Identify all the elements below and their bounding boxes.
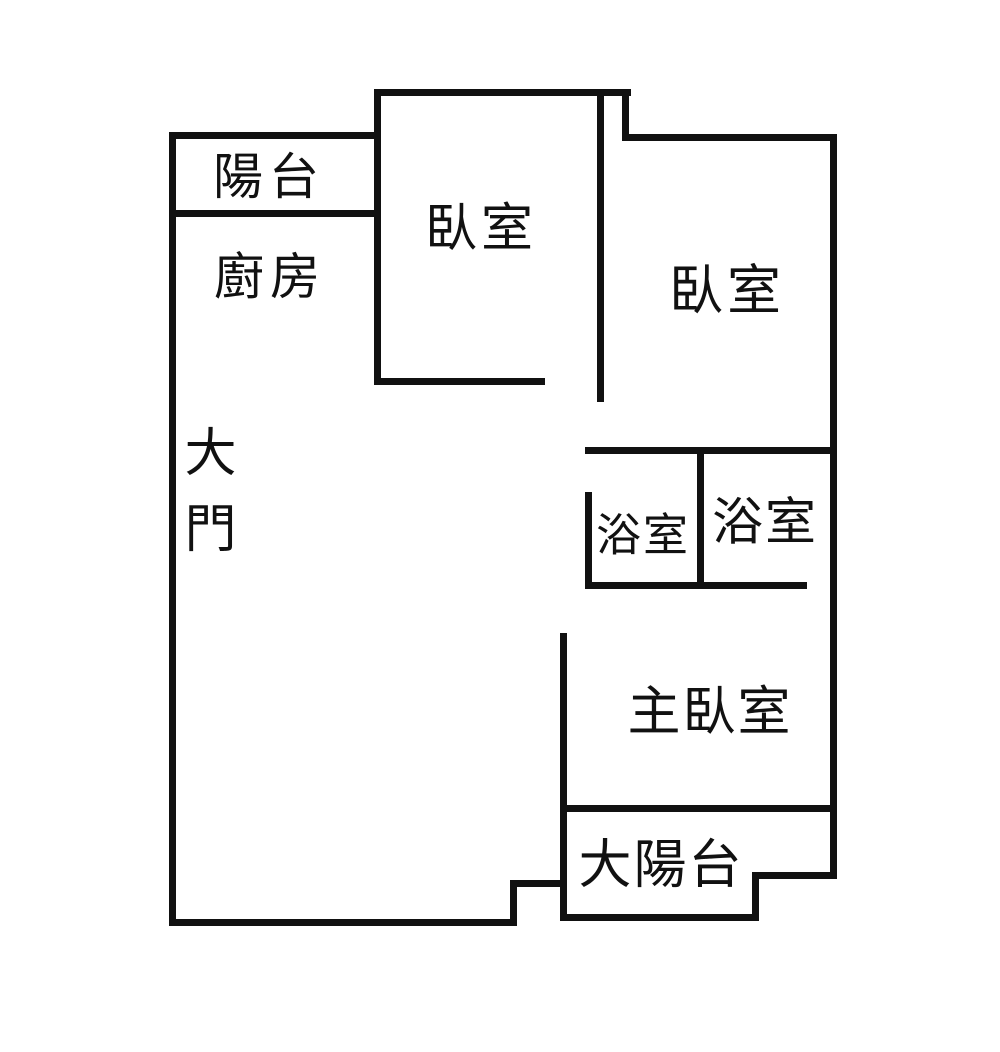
wall-outer-left — [169, 132, 176, 926]
wall-bath-top — [585, 447, 837, 454]
wall-terrace-step-top — [752, 872, 837, 879]
wall-bedroom-right-top — [622, 134, 837, 141]
wall-bedroom-top-right — [597, 89, 604, 402]
wall-bath-bottom — [585, 582, 807, 589]
wall-bath-divider — [697, 447, 704, 589]
room-label-big-balcony: 大陽台 — [579, 840, 744, 893]
wall-terrace-step-right — [752, 872, 759, 921]
wall-bath-left-left — [585, 492, 592, 589]
wall-entry-step-top — [510, 880, 567, 887]
wall-balcony-top — [170, 132, 380, 139]
wall-master-left — [560, 633, 567, 921]
room-label-bedroom-top: 臥室 — [425, 204, 537, 256]
wall-top-step — [622, 89, 629, 141]
room-label-kitchen: 廚房 — [214, 252, 326, 302]
wall-outer-bottom — [169, 919, 517, 926]
room-label-master-bedroom: 主臥室 — [628, 687, 793, 740]
room-label-bedroom-right: 臥室 — [669, 264, 785, 318]
room-label-bath-right: 浴室 — [712, 499, 818, 550]
wall-master-bottom — [560, 805, 837, 812]
wall-terrace-bottom — [560, 914, 759, 921]
wall-bedroom-top-top — [374, 89, 631, 96]
wall-entry-step-vertical — [510, 880, 517, 926]
room-label-balcony: 陽台 — [213, 152, 325, 202]
room-label-bath-left: 浴室 — [596, 514, 690, 559]
wall-bedroom-top-bottom — [374, 378, 545, 385]
wall-bedroom-top-left — [374, 89, 381, 385]
floor-plan: 陽台 廚房 臥室 臥室 大門 浴室 浴室 主臥室 大陽台 — [0, 0, 1000, 1052]
wall-balcony-bottom — [170, 210, 380, 217]
wall-outer-right — [830, 134, 837, 879]
room-label-main-door: 大門 — [178, 425, 230, 577]
